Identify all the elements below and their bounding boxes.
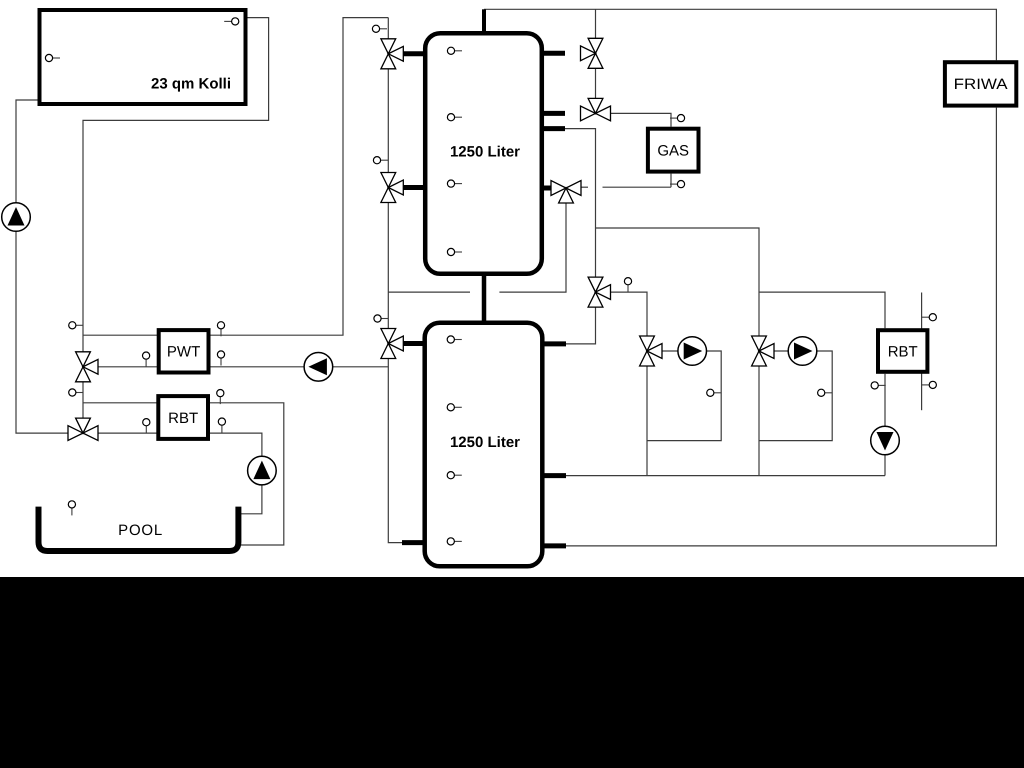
svg-text:RBT: RBT [168,410,198,427]
svg-text:POOL: POOL [118,522,163,539]
svg-text:23 qm Kolli: 23 qm Kolli [151,76,231,93]
svg-text:1250 Liter: 1250 Liter [450,434,520,451]
svg-text:1250 Liter: 1250 Liter [450,143,520,160]
svg-text:PWT: PWT [167,344,200,361]
svg-text:GAS: GAS [657,142,689,159]
svg-text:FRIWA: FRIWA [954,76,1008,93]
svg-text:RBT: RBT [888,343,918,360]
